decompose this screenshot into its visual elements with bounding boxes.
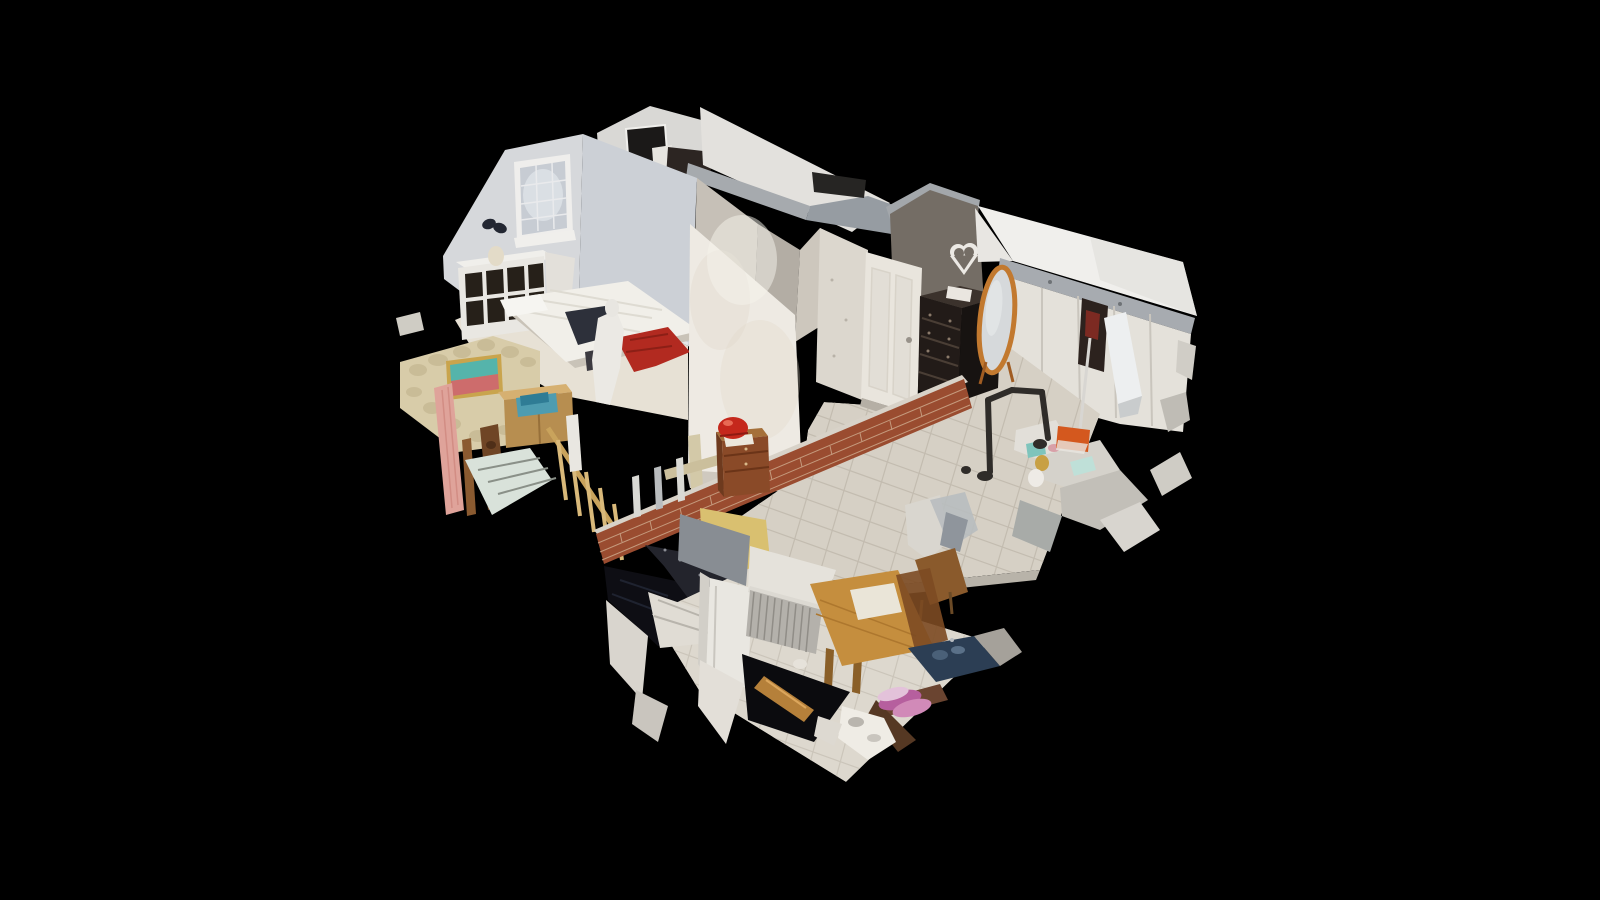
- red-helmet: [718, 417, 748, 439]
- dollhouse-svg[interactable]: [0, 0, 1600, 900]
- nightstand: [716, 428, 770, 497]
- wooden-sideboard: [498, 384, 574, 448]
- bedroom-window: [514, 154, 576, 248]
- upper-stairs: [465, 448, 556, 515]
- door-frame-wall: [816, 228, 868, 400]
- figurine: [488, 246, 504, 266]
- framed-picture: [446, 354, 503, 400]
- viewer-stage: [0, 0, 1600, 900]
